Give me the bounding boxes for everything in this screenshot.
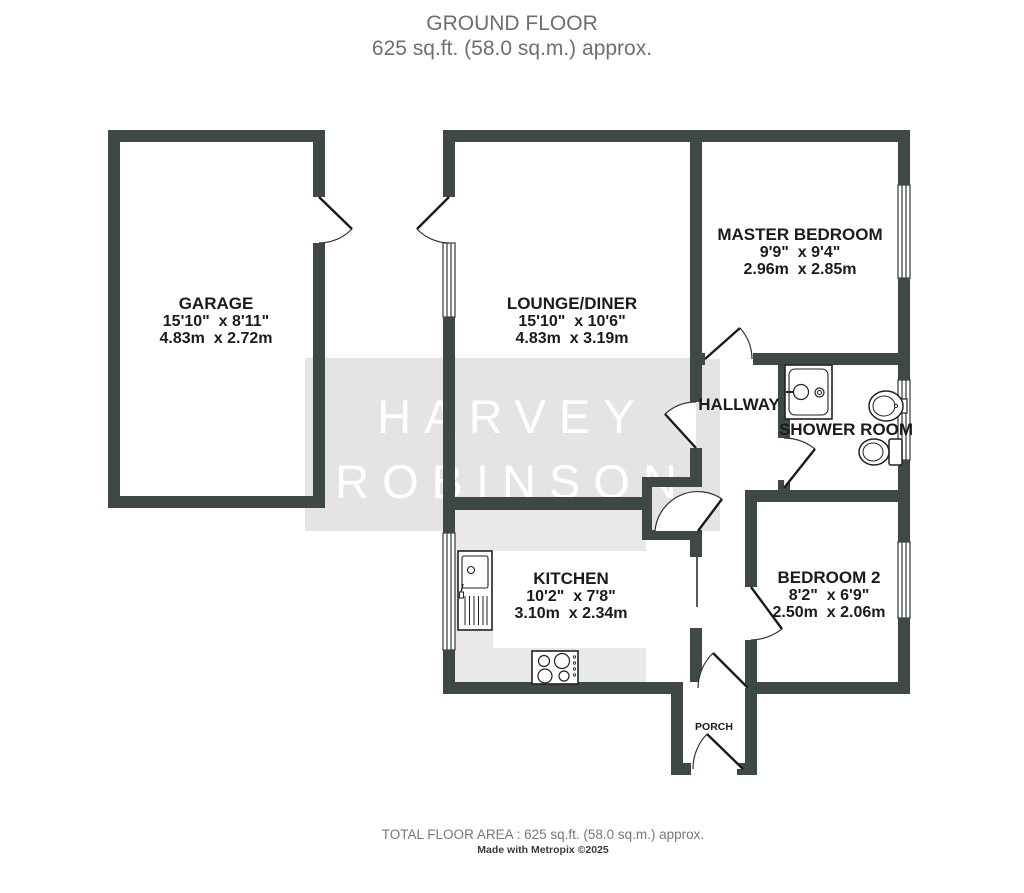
master-bedroom-window-icon — [898, 185, 910, 278]
floor-area-subtitle: 625 sq.ft. (58.0 sq.m.) approx. — [0, 36, 1024, 61]
toilet-icon — [859, 439, 902, 465]
room-dims-metric: 2.50m x 2.06m — [773, 604, 886, 622]
floor-title-block: GROUND FLOOR 625 sq.ft. (58.0 sq.m.) app… — [0, 11, 1024, 61]
room-dims-metric: 3.10m x 2.34m — [515, 605, 628, 623]
kitchen-window-icon — [443, 533, 455, 650]
kitchen-sink-icon — [458, 551, 492, 630]
floorplan-drawing — [0, 0, 1024, 893]
kitchen-label: KITCHEN 10'2" x 7'8" 3.10m x 2.34m — [515, 570, 628, 623]
room-dims-imperial: 8'2" x 6'9" — [773, 587, 886, 605]
floor-title: GROUND FLOOR — [0, 11, 1024, 36]
lounge-window-icon — [443, 243, 455, 317]
kitchen-door-icon — [655, 492, 722, 531]
hallway-label: HALLWAY — [698, 396, 780, 414]
room-name: PORCH — [695, 722, 733, 733]
room-dims-imperial: 15'10" x 8'11" — [160, 313, 273, 331]
hob-icon — [532, 651, 578, 684]
shower-room-door-icon — [784, 438, 815, 488]
floorplan-page: GROUND FLOOR 625 sq.ft. (58.0 sq.m.) app… — [0, 0, 1024, 893]
porch-inner-door-icon — [698, 653, 748, 688]
entrance-door-icon — [693, 734, 743, 769]
shower-room-label: SHOWER ROOM — [779, 421, 913, 439]
bedroom2-window-icon — [898, 542, 910, 618]
lounge-exterior-door-icon — [417, 197, 449, 243]
room-dims-imperial: 15'10" x 10'6" — [507, 313, 637, 331]
room-dims-imperial: 10'2" x 7'8" — [515, 588, 628, 606]
room-name: BEDROOM 2 — [773, 569, 886, 587]
room-dims-imperial: 9'9" x 9'4" — [717, 244, 882, 262]
room-name: MASTER BEDROOM — [717, 226, 882, 244]
shower-cubicle-icon — [785, 365, 832, 419]
garage-label: GARAGE 15'10" x 8'11" 4.83m x 2.72m — [160, 295, 273, 348]
room-name: LOUNGE/DINER — [507, 295, 637, 313]
room-dims-metric: 4.83m x 3.19m — [507, 330, 637, 348]
bedroom2-label: BEDROOM 2 8'2" x 6'9" 2.50m x 2.06m — [773, 569, 886, 622]
room-name: KITCHEN — [515, 570, 628, 588]
metropix-credit: Made with Metropix ©2025 — [193, 843, 893, 857]
room-dims-metric: 4.83m x 2.72m — [160, 330, 273, 348]
room-name: GARAGE — [160, 295, 273, 313]
room-name: HALLWAY — [698, 396, 780, 414]
room-name: SHOWER ROOM — [779, 421, 913, 439]
porch-label: PORCH — [695, 722, 733, 733]
total-floor-area: TOTAL FLOOR AREA : 625 sq.ft. (58.0 sq.m… — [193, 827, 893, 843]
footer: TOTAL FLOOR AREA : 625 sq.ft. (58.0 sq.m… — [193, 827, 893, 857]
lounge-diner-label: LOUNGE/DINER 15'10" x 10'6" 4.83m x 3.19… — [507, 295, 637, 348]
lounge-hallway-door-icon — [665, 402, 696, 448]
room-dims-metric: 2.96m x 2.85m — [717, 261, 882, 279]
garage-door-icon — [319, 197, 352, 243]
master-bedroom-door-icon — [705, 328, 752, 359]
master-bedroom-label: MASTER BEDROOM 9'9" x 9'4" 2.96m x 2.85m — [717, 226, 882, 279]
